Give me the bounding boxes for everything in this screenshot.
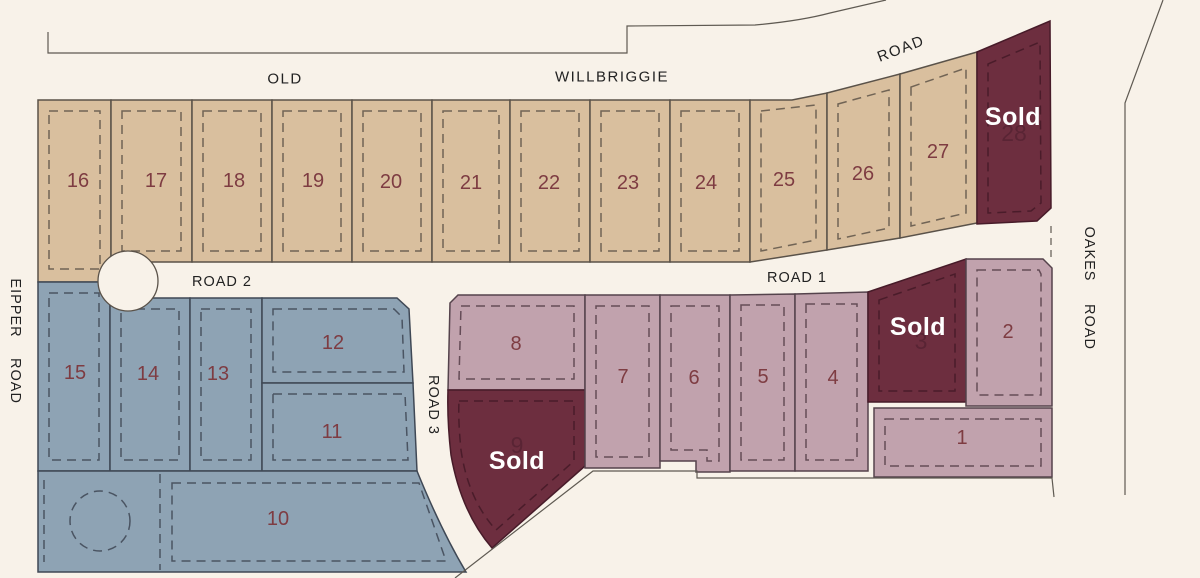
road-label-road1: ROAD 1 — [767, 270, 827, 286]
lot-1[interactable]: 1 — [874, 408, 1052, 477]
lot-15[interactable]: 15 — [38, 282, 110, 471]
lot-14-number: 14 — [137, 363, 159, 385]
lot-13-number: 13 — [207, 363, 229, 385]
lot-9-sold-badge: Sold — [489, 447, 545, 475]
lot-7-number: 7 — [617, 366, 628, 388]
lot-4[interactable]: 4 — [795, 292, 868, 471]
road-label-eipper: EIPPER — [7, 278, 23, 337]
lot-15-number: 15 — [64, 362, 86, 384]
lot-27[interactable]: 27 — [900, 52, 977, 238]
lot-18[interactable]: 18 — [192, 100, 272, 262]
lot-22-number: 22 — [538, 172, 560, 194]
road-label-oakes-road: ROAD — [1081, 304, 1097, 350]
lot-2[interactable]: 2 — [966, 259, 1052, 406]
lot-18-number: 18 — [223, 170, 245, 192]
lot-14[interactable]: 14 — [110, 298, 190, 471]
lot-24-number: 24 — [695, 172, 717, 194]
lot-22[interactable]: 22 — [510, 100, 590, 262]
road-label-old: OLD — [267, 71, 302, 88]
boundary-north — [48, 0, 886, 53]
lot-6[interactable]: 6 — [660, 295, 730, 472]
lot-25-number: 25 — [773, 169, 795, 191]
lot-21[interactable]: 21 — [432, 100, 510, 262]
lot-28-sold[interactable]: 28 Sold — [977, 21, 1051, 224]
lot-10-number: 10 — [267, 508, 289, 530]
road-label-eipper-road: ROAD — [7, 358, 23, 404]
lot-11-number: 11 — [322, 421, 343, 443]
boundary-east — [1125, 0, 1163, 495]
cul-de-sac — [98, 251, 158, 311]
lot-12-number: 12 — [322, 332, 344, 354]
lot-8-number: 8 — [510, 333, 521, 355]
lot-17-number: 17 — [145, 170, 167, 192]
lot-17[interactable]: 17 — [111, 100, 192, 262]
road-label-willbriggie: WILLBRIGGIE — [555, 69, 669, 86]
subdivision-map: 16 17 18 19 20 21 22 23 24 — [0, 0, 1200, 578]
lot-28-sold-badge: Sold — [985, 103, 1041, 131]
lot-9-sold[interactable]: 9 Sold — [448, 390, 585, 548]
lot-20[interactable]: 20 — [352, 100, 432, 262]
lot-3-sold-badge: Sold — [890, 313, 946, 341]
map-canvas: 16 17 18 19 20 21 22 23 24 — [0, 0, 1200, 578]
road-label-road3: ROAD 3 — [425, 375, 441, 435]
lot-24[interactable]: 24 — [670, 100, 750, 262]
lot-16-number: 16 — [67, 170, 89, 192]
lot-3-sold[interactable]: 3 Sold — [868, 259, 966, 402]
lot-23-number: 23 — [617, 172, 639, 194]
lot-4-number: 4 — [827, 367, 838, 389]
lot-16[interactable]: 16 — [38, 100, 111, 282]
lot-5-number: 5 — [757, 366, 768, 388]
lot-20-number: 20 — [380, 171, 402, 193]
road-label-oakes: OAKES — [1081, 227, 1097, 282]
lot-10-shape — [38, 471, 466, 572]
lot-25[interactable]: 25 — [750, 93, 827, 262]
road-label-road2: ROAD 2 — [192, 274, 252, 290]
lot-26[interactable]: 26 — [827, 74, 900, 250]
lot-11[interactable]: 11 — [262, 383, 417, 471]
road-label-road-top: ROAD — [875, 32, 927, 66]
lot-1-number: 1 — [956, 427, 967, 449]
lot-21-number: 21 — [460, 172, 482, 194]
lot-2-number: 2 — [1002, 321, 1013, 343]
lot-7[interactable]: 7 — [585, 295, 660, 468]
lot-12[interactable]: 12 — [262, 298, 413, 383]
lot-26-number: 26 — [852, 163, 874, 185]
lot-13[interactable]: 13 — [190, 298, 262, 471]
lot-8[interactable]: 8 — [448, 295, 585, 390]
lot-6-number: 6 — [688, 367, 699, 389]
lot-5[interactable]: 5 — [730, 294, 795, 471]
lot-27-number: 27 — [927, 141, 949, 163]
lot-23[interactable]: 23 — [590, 100, 670, 262]
lot-10[interactable]: 10 — [38, 471, 466, 572]
lot-19[interactable]: 19 — [272, 100, 352, 262]
lot-19-number: 19 — [302, 170, 324, 192]
